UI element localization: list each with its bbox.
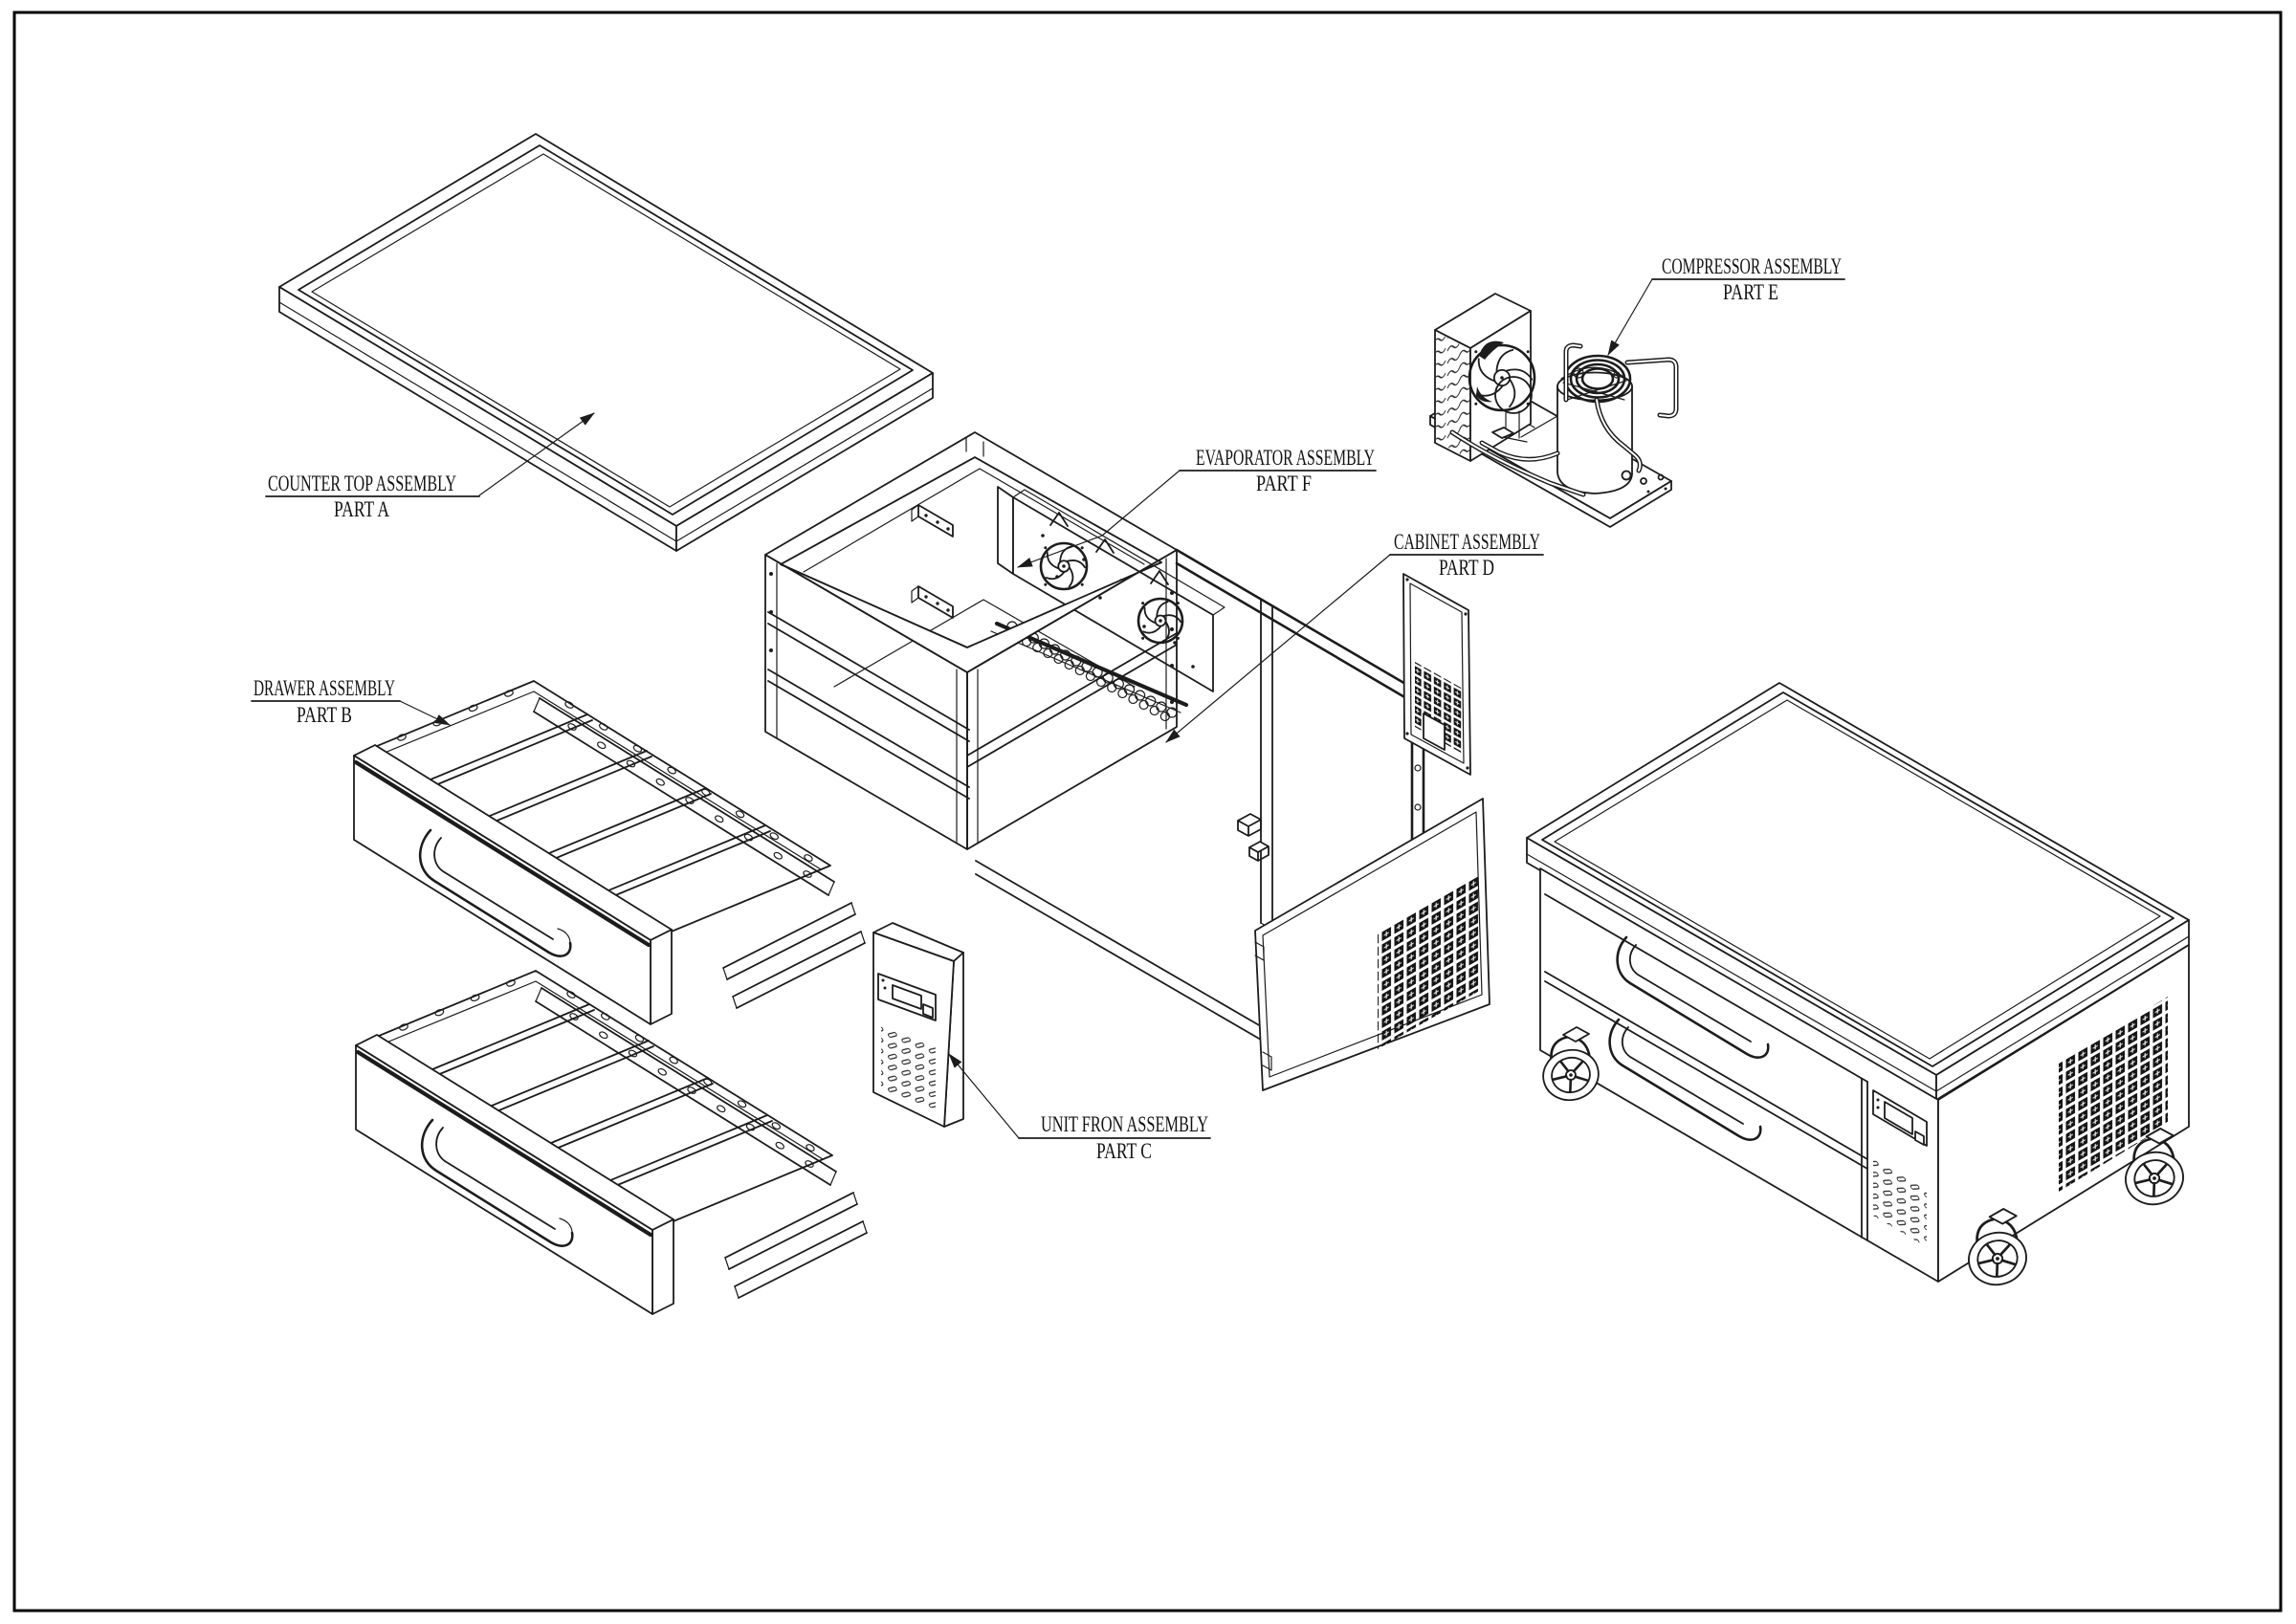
callout-part: PART C	[1096, 1139, 1152, 1163]
compressor-assembly	[1430, 294, 1676, 527]
cabinet-side-panel-large	[1255, 799, 1490, 1090]
callout-title: EVAPORATOR ASSEMBLY	[1196, 446, 1375, 470]
drawer-assembly	[354, 681, 865, 1024]
callout-part: PART F	[1256, 472, 1312, 495]
callout-part: PART B	[297, 703, 352, 727]
diagram-canvas: COUNTER TOP ASSEMBLY PART A DRAWER ASSEM…	[0, 0, 2296, 1624]
rail-perforations	[567, 722, 813, 878]
callout-part-e: COMPRESSOR ASSEMBLY PART E	[1608, 254, 1844, 355]
callout-title: DRAWER ASSEMBLY	[254, 676, 395, 700]
leader-line	[400, 701, 450, 725]
unit-front-panel	[873, 923, 963, 1127]
callout-title: UNIT FRON ASSEMBLY	[1041, 1112, 1208, 1136]
rail-perforations	[569, 1012, 815, 1168]
rail-perforations	[564, 700, 814, 862]
callout-part-d: CABINET ASSEMBLY PART D	[1166, 530, 1543, 742]
callout-part: PART E	[1723, 280, 1778, 304]
callout-title: COUNTER TOP ASSEMBLY	[268, 472, 456, 495]
drawer-assembly-2	[356, 971, 867, 1314]
cabinet-side-panel-small	[1403, 574, 1470, 775]
callout-part-c: UNIT FRON ASSEMBLY PART C	[949, 1054, 1210, 1163]
leader-line	[1608, 279, 1652, 355]
exploded-view-drawing: COUNTER TOP ASSEMBLY PART A DRAWER ASSEM…	[0, 0, 2296, 1624]
assembled-unit	[1527, 683, 2189, 1291]
callout-part: PART A	[334, 497, 389, 521]
callout-title: COMPRESSOR ASSEMBLY	[1662, 254, 1842, 278]
rail-perforations	[566, 990, 816, 1152]
callout-part-b: DRAWER ASSEMBLY PART B	[252, 676, 450, 727]
callout-title: CABINET ASSEMBLY	[1394, 530, 1540, 554]
callout-part: PART D	[1439, 556, 1494, 580]
